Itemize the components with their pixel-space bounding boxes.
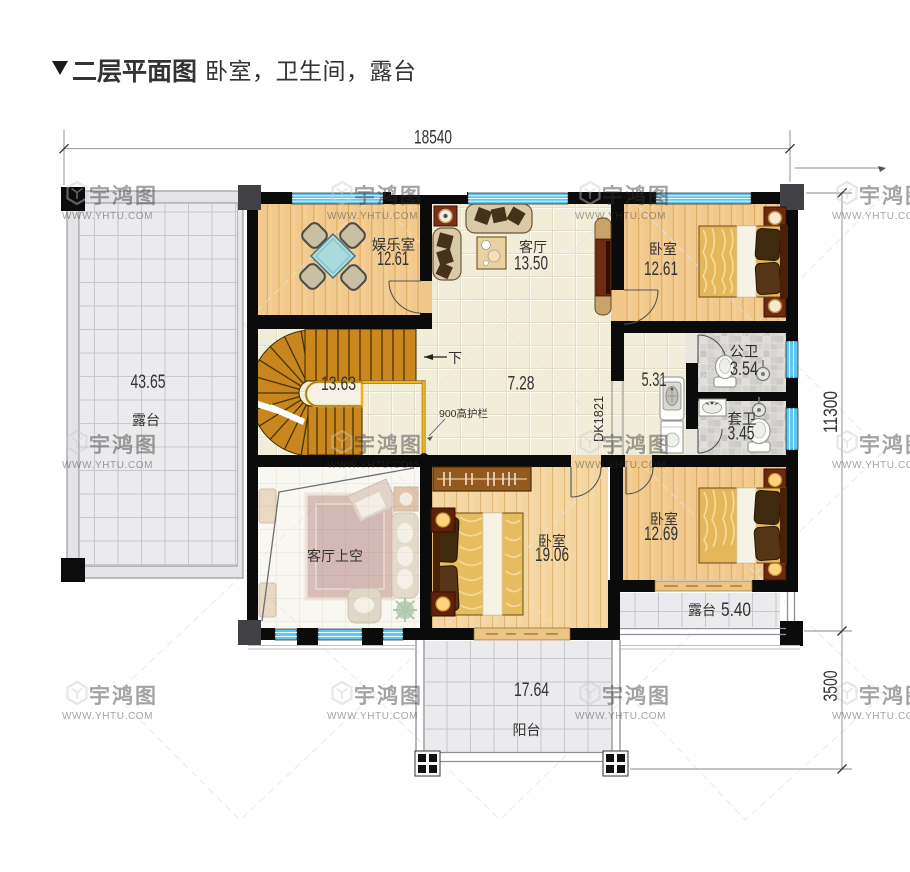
svg-text:5.40: 5.40 <box>721 600 751 621</box>
svg-text:阳台: 阳台 <box>513 722 541 738</box>
svg-text:17.64: 17.64 <box>514 680 549 701</box>
svg-text:3.45: 3.45 <box>728 424 755 445</box>
svg-text:900高护栏: 900高护栏 <box>439 407 488 420</box>
svg-text:11300: 11300 <box>821 391 842 433</box>
svg-text:下: 下 <box>448 350 462 366</box>
svg-text:3.54: 3.54 <box>730 359 758 380</box>
svg-text:卧室，卫生间，露台: 卧室，卫生间，露台 <box>205 58 417 84</box>
svg-text:19.06: 19.06 <box>535 545 569 566</box>
svg-text:7.28: 7.28 <box>508 374 535 395</box>
svg-text:露台: 露台 <box>132 412 160 428</box>
svg-text:43.65: 43.65 <box>131 372 166 393</box>
svg-text:卧室: 卧室 <box>649 241 677 257</box>
svg-text:二层平面图: 二层平面图 <box>72 58 197 86</box>
svg-text:露台: 露台 <box>688 602 716 618</box>
svg-text:13.63: 13.63 <box>321 374 356 395</box>
svg-text:12.61: 12.61 <box>377 249 409 270</box>
svg-text:客厅上空: 客厅上空 <box>307 548 363 564</box>
svg-text:12.69: 12.69 <box>644 524 678 545</box>
svg-text:5.31: 5.31 <box>642 370 667 391</box>
svg-text:12.61: 12.61 <box>644 259 678 280</box>
svg-text:13.50: 13.50 <box>514 254 548 275</box>
svg-text:18540: 18540 <box>414 128 452 149</box>
